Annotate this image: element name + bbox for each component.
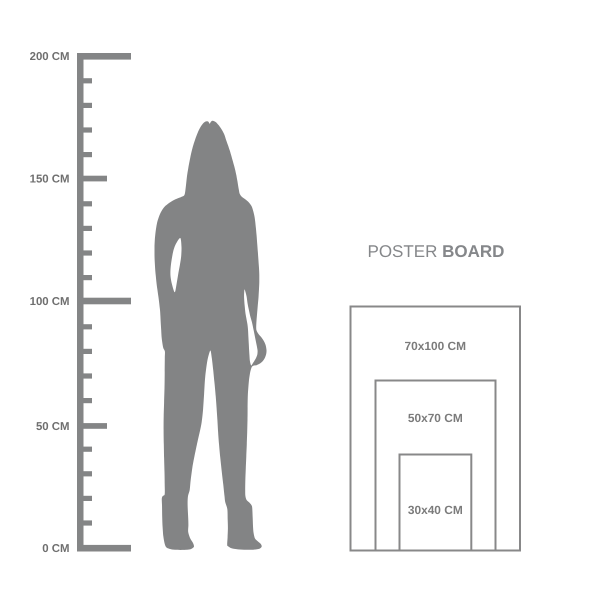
svg-text:POSTER BOARD: POSTER BOARD <box>368 242 505 261</box>
svg-text:70x100 CM: 70x100 CM <box>405 339 467 353</box>
svg-text:0 CM: 0 CM <box>42 543 69 555</box>
svg-text:200 CM: 200 CM <box>30 51 70 63</box>
svg-text:50 CM: 50 CM <box>36 421 70 433</box>
svg-text:30x40 CM: 30x40 CM <box>408 503 463 517</box>
svg-text:50x70 CM: 50x70 CM <box>408 411 463 425</box>
svg-text:150 CM: 150 CM <box>30 174 70 186</box>
svg-text:100 CM: 100 CM <box>30 296 70 308</box>
